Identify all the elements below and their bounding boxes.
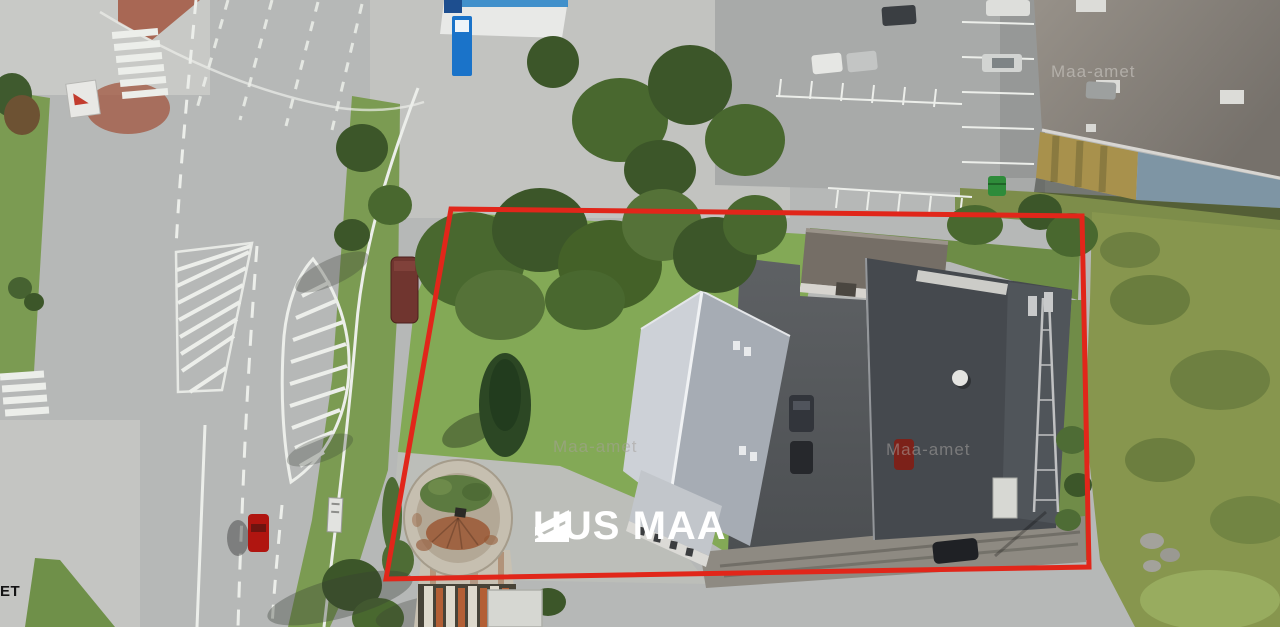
parked-car (811, 52, 843, 74)
white-hut (993, 478, 1017, 518)
green-dumpster (988, 176, 1006, 196)
chimney (733, 341, 740, 350)
big-building (1034, 0, 1280, 220)
info-sign (327, 498, 343, 533)
warehouse-building (866, 258, 1072, 540)
uus-maa-logo: UUS MAA (533, 506, 727, 546)
brown-bush (4, 95, 40, 135)
roof-dome-vent (952, 370, 968, 386)
dark-van (789, 395, 814, 432)
red-car-on-road (248, 514, 269, 552)
antenna-panel (1028, 296, 1037, 316)
small-white-building (488, 590, 542, 627)
aerial-photo: Maa-amet Maa-amet Maa-amet ET UUS MAA (0, 0, 1280, 627)
edge-watermark-fragment: ET (0, 583, 20, 600)
uus-maa-flag-icon (533, 506, 571, 544)
car-shadow (227, 520, 249, 556)
roadside-sign (66, 80, 100, 118)
dark-red-car (894, 439, 914, 470)
garage-door (835, 282, 856, 297)
rocks (1140, 533, 1164, 549)
rough-grassland (1085, 212, 1280, 627)
